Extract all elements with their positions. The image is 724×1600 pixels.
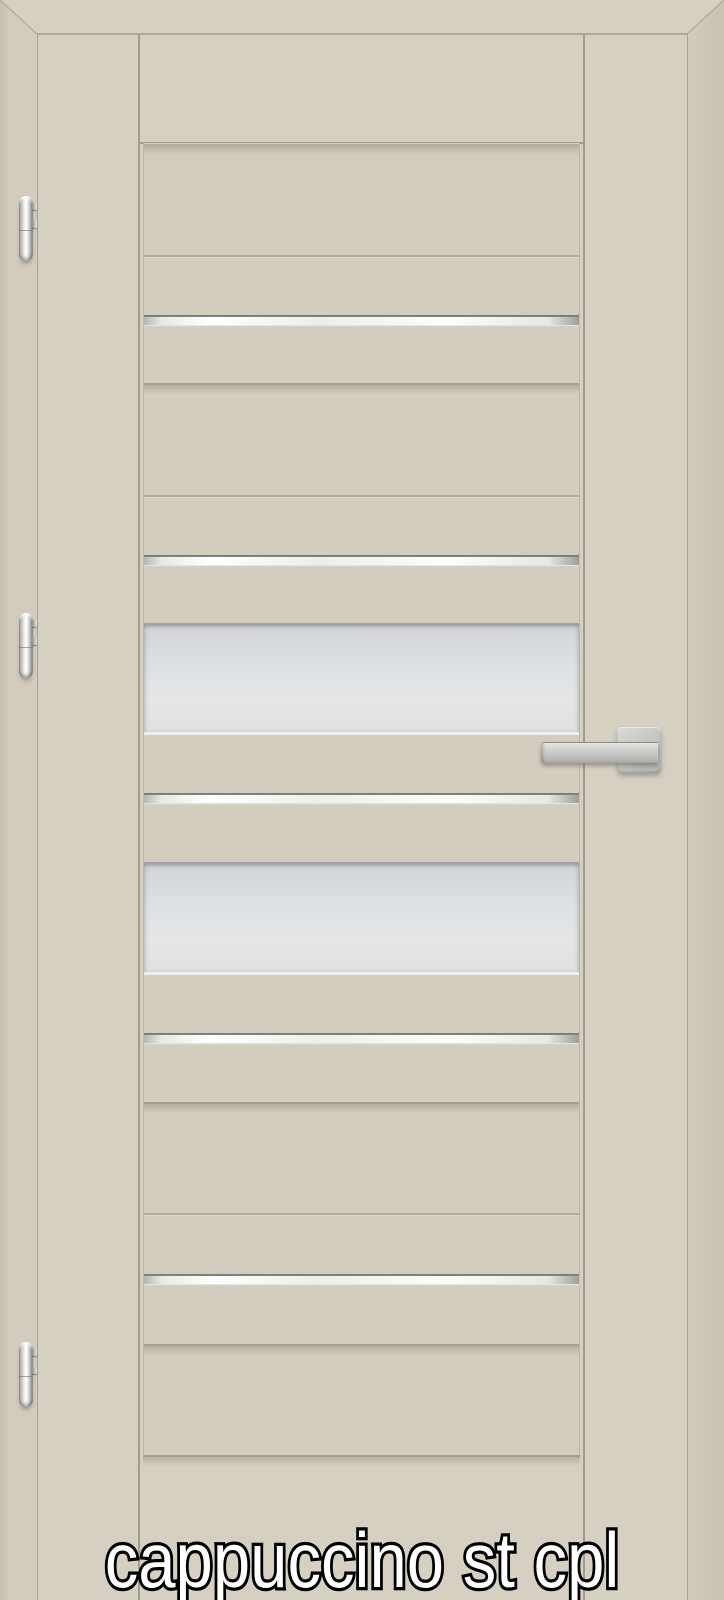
hinge-pin (32, 1349, 37, 1356)
chrome-strip-3 (144, 793, 579, 803)
hinge-bottom (19, 1342, 33, 1407)
chrome-strip-4 (144, 1033, 579, 1043)
chrome-strip-2 (144, 555, 579, 565)
hinge-seam (19, 230, 33, 231)
chrome-strip-5 (144, 1274, 579, 1284)
groove-line-3 (144, 1213, 579, 1216)
panel-step-shadow-top (144, 144, 579, 155)
panel-step-shadow-2 (144, 1102, 579, 1113)
hinge-seam (19, 1376, 33, 1377)
leaf-gap-left-line (138, 34, 140, 1600)
hinge-pin (32, 1367, 37, 1374)
bottom-rail-edge (143, 1455, 580, 1466)
frame-edge-right-line (687, 34, 688, 1600)
leaf-gap-right-line (583, 34, 585, 1600)
wall-right-face (687, 0, 724, 1600)
hinge-seam (19, 647, 33, 648)
groove-line-1 (144, 255, 579, 258)
glass-pane-lower (144, 862, 579, 975)
hinge-top (19, 196, 33, 261)
door-handle-lever (541, 742, 658, 763)
frame-miter-lines (0, 0, 724, 40)
product-caption: cappuccino st cpl cappuccino st cpl (51, 1520, 674, 1600)
frame-edge-left-line (37, 34, 38, 1600)
caption-text: cappuccino st cpl (105, 1520, 620, 1600)
hinge-pin (32, 638, 37, 645)
hinge-pin (32, 620, 37, 627)
groove-line-2 (144, 495, 579, 498)
hinge-pin (32, 203, 37, 210)
panel-field (143, 143, 580, 1456)
door-product-photo: cappuccino st cpl cappuccino st cpl (0, 0, 724, 1600)
panel-step-shadow-3 (144, 1344, 579, 1355)
hinge-pin (32, 221, 37, 228)
panel-step-shadow-1 (144, 383, 579, 394)
glass-pane-upper (144, 623, 579, 735)
chrome-strip-1 (144, 315, 579, 325)
hinge-middle (19, 613, 33, 678)
